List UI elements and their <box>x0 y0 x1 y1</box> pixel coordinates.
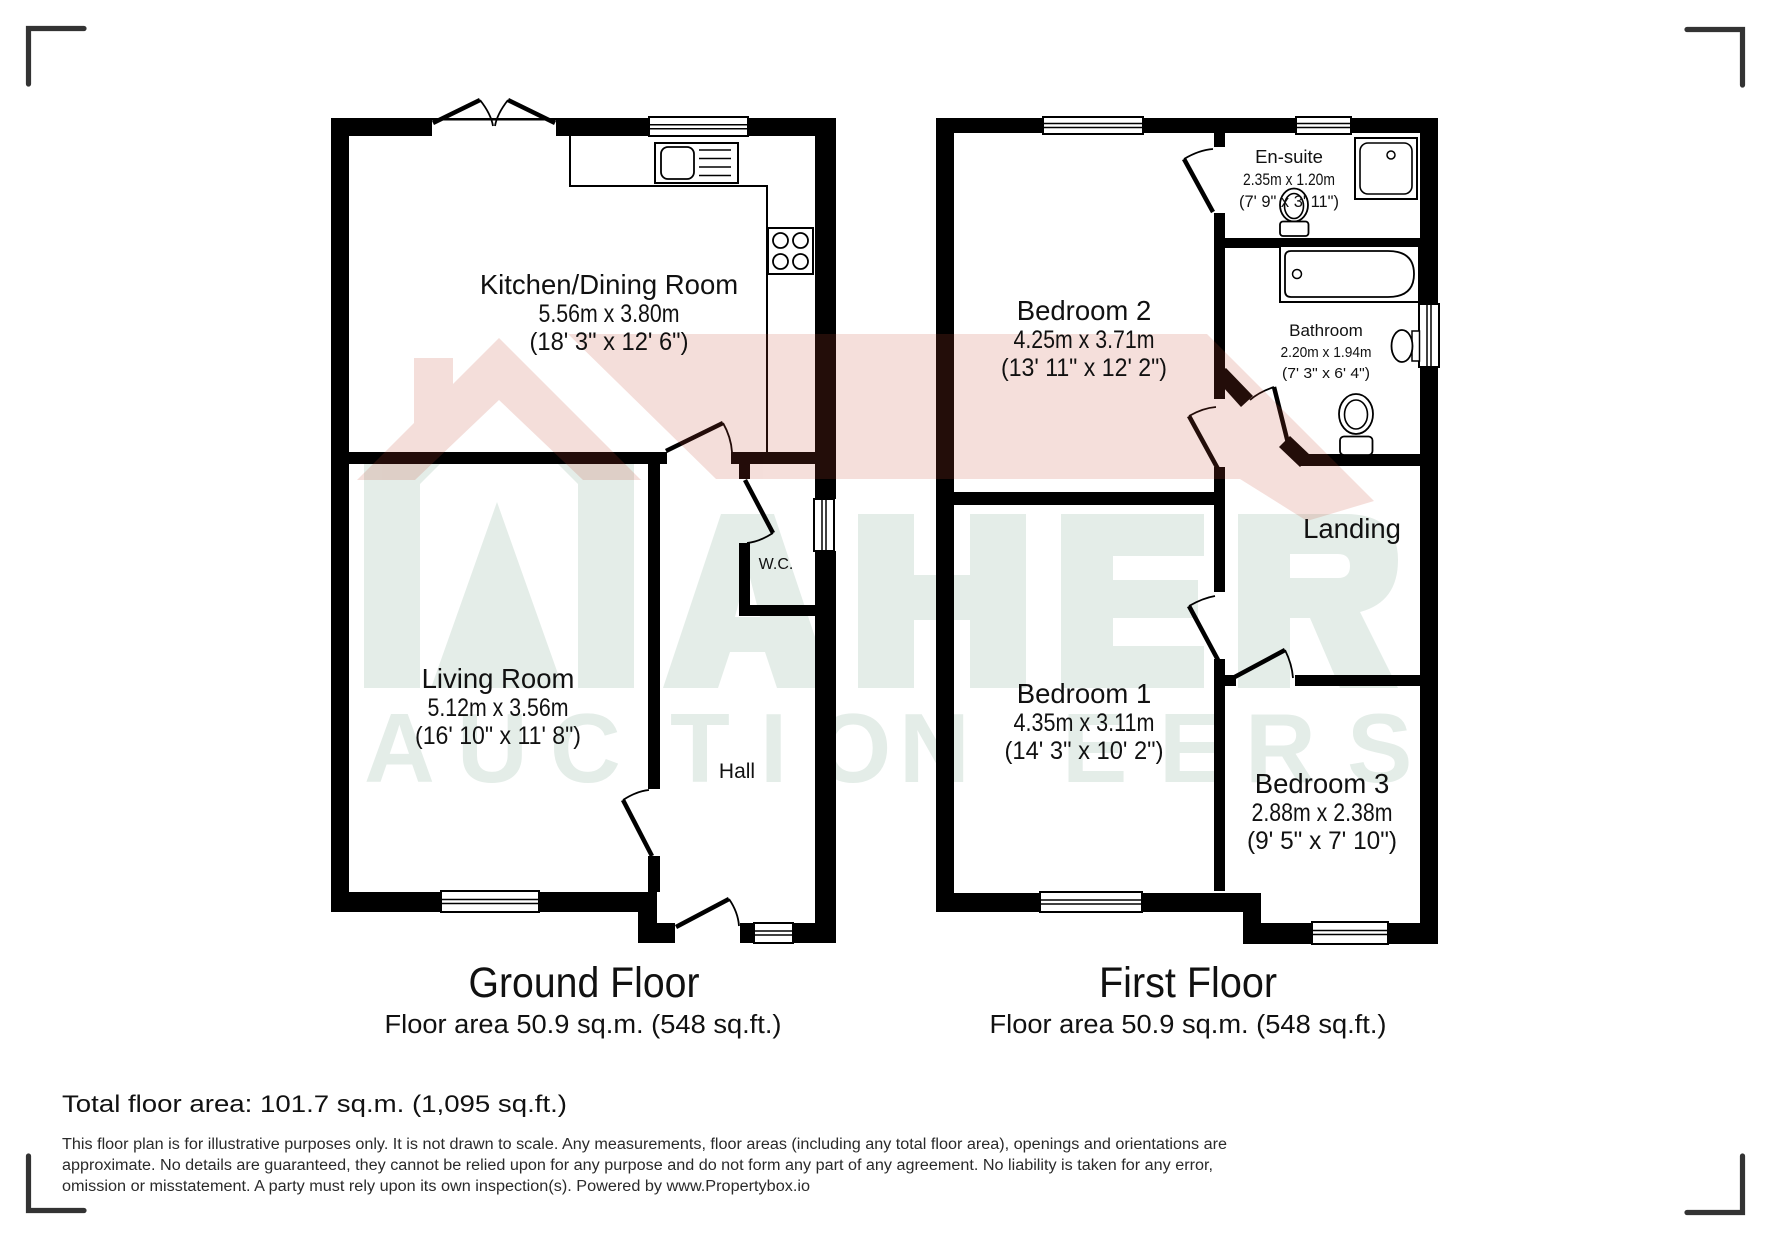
svg-text:(14' 3" x 10' 2"): (14' 3" x 10' 2") <box>1005 737 1164 765</box>
svg-text:Bedroom 3: Bedroom 3 <box>1255 768 1390 799</box>
svg-text:omission or misstatement. A pa: omission or misstatement. A party must r… <box>62 1178 810 1195</box>
svg-text:First Floor: First Floor <box>1099 959 1277 1007</box>
svg-text:Floor area 50.9 sq.m. (548 sq.: Floor area 50.9 sq.m. (548 sq.ft.) <box>990 1011 1387 1039</box>
svg-text:approximate. No details are gu: approximate. No details are guaranteed, … <box>62 1157 1213 1174</box>
svg-text:Kitchen/Dining Room: Kitchen/Dining Room <box>480 269 738 300</box>
svg-text:4.25m x 3.71m: 4.25m x 3.71m <box>1014 326 1155 354</box>
svg-text:(7' 9" x 3' 11"): (7' 9" x 3' 11") <box>1239 193 1339 211</box>
svg-text:T: T <box>670 693 730 803</box>
svg-text:Living Room: Living Room <box>422 663 575 694</box>
svg-text:I: I <box>760 693 787 803</box>
svg-text:2.20m x 1.94m: 2.20m x 1.94m <box>1281 344 1372 361</box>
svg-text:(9' 5" x 7' 10"): (9' 5" x 7' 10") <box>1247 827 1397 855</box>
svg-text:Hall: Hall <box>719 760 755 783</box>
svg-text:Ground Floor: Ground Floor <box>469 959 700 1007</box>
svg-text:En-suite: En-suite <box>1255 146 1323 167</box>
svg-text:This floor plan is for illustr: This floor plan is for illustrative purp… <box>62 1136 1227 1153</box>
svg-text:W.C.: W.C. <box>759 556 794 573</box>
svg-text:(7' 3" x 6' 4"): (7' 3" x 6' 4") <box>1282 365 1370 382</box>
svg-text:4.35m x 3.11m: 4.35m x 3.11m <box>1014 709 1155 737</box>
svg-text:(13' 11" x 12' 2"): (13' 11" x 12' 2") <box>1001 354 1167 382</box>
svg-text:Bedroom 1: Bedroom 1 <box>1017 678 1152 709</box>
svg-text:5.12m x 3.56m: 5.12m x 3.56m <box>428 694 569 722</box>
svg-text:2.35m x 1.20m: 2.35m x 1.20m <box>1243 171 1335 189</box>
svg-text:2.88m x 2.38m: 2.88m x 2.38m <box>1252 799 1393 827</box>
svg-text:Bathroom: Bathroom <box>1289 321 1363 340</box>
svg-text:(18' 3" x 12' 6"): (18' 3" x 12' 6") <box>530 328 689 356</box>
svg-text:N: N <box>899 693 970 803</box>
svg-text:5.56m x 3.80m: 5.56m x 3.80m <box>539 300 680 328</box>
svg-text:(16' 10" x 11' 8"): (16' 10" x 11' 8") <box>415 722 581 750</box>
svg-text:Floor area 50.9 sq.m. (548 sq.: Floor area 50.9 sq.m. (548 sq.ft.) <box>385 1011 782 1039</box>
svg-text:Landing: Landing <box>1303 513 1401 544</box>
svg-text:Bedroom 2: Bedroom 2 <box>1017 295 1152 326</box>
svg-text:Total floor area: 101.7 sq.m.: Total floor area: 101.7 sq.m. (1,095 sq.… <box>62 1091 567 1118</box>
